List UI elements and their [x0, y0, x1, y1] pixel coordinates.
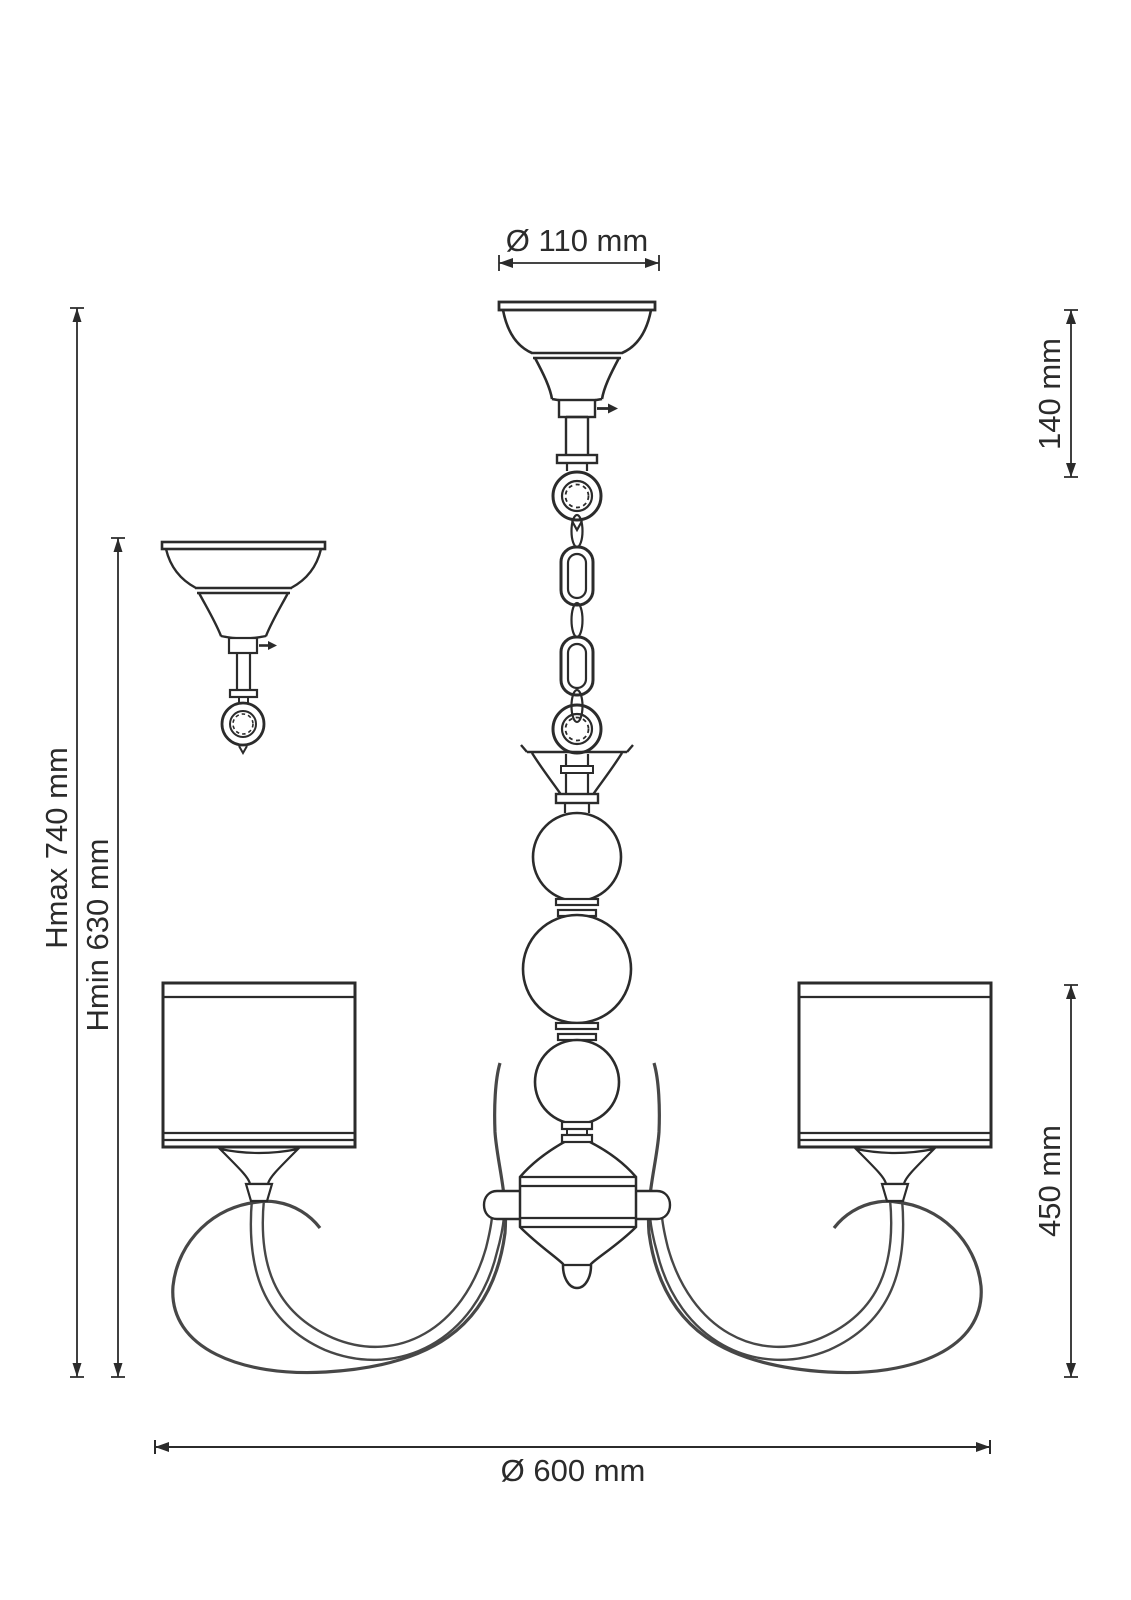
canopy-collar — [559, 400, 595, 417]
chain-link-oval — [561, 637, 593, 695]
detail-stem — [237, 653, 250, 690]
arrow-up-icon — [1066, 985, 1076, 999]
ball-spool-connector — [556, 899, 598, 916]
detail-flange — [230, 690, 257, 697]
glass-ball-small-bottom — [535, 1040, 619, 1124]
arrow-up-icon — [1066, 310, 1076, 324]
ball-spool-connector — [556, 1023, 598, 1040]
lampshade-left — [163, 983, 355, 1147]
dim-overall-diameter-label: Ø 600 mm — [501, 1453, 646, 1488]
cup-socket — [246, 1184, 272, 1201]
arrow-down-icon — [1066, 463, 1076, 477]
arrow-up-icon — [114, 538, 123, 552]
trumpet-spool — [565, 803, 589, 813]
dim-max-height: Hmax 740 mm — [39, 308, 84, 1377]
bobeche-trumpet — [521, 745, 633, 813]
arrow-down-icon — [114, 1363, 123, 1377]
left-arm-tube-outer — [251, 1199, 504, 1360]
hanging-ring-bottom — [553, 705, 601, 753]
chain-link-oval — [561, 547, 593, 605]
cup-funnel — [856, 1149, 934, 1184]
candle-cup-left — [220, 1149, 298, 1201]
lampshade-right — [799, 983, 991, 1147]
central-hub — [520, 1141, 636, 1288]
ring-nub — [572, 521, 582, 530]
chain — [561, 515, 593, 722]
ceiling-canopy — [499, 302, 655, 471]
arm-boss-right — [633, 1191, 670, 1219]
cup-funnel — [220, 1149, 298, 1184]
canopy-detail-view — [162, 542, 325, 753]
cup-socket — [882, 1184, 908, 1201]
trumpet-base-flange — [556, 794, 598, 803]
chain-link-oval-inner — [568, 644, 586, 688]
arrow-right-icon — [976, 1442, 990, 1452]
suspension-stem — [566, 417, 588, 455]
technical-drawing-page: Ø 110 mm 140 mm Hmax 740 mm Hmin 630 mm … — [0, 0, 1131, 1600]
setscrew-arrow-icon — [259, 641, 277, 650]
dim-canopy-diameter-label: Ø 110 mm — [506, 223, 648, 258]
dim-max-height-label: Hmax 740 mm — [39, 747, 74, 949]
arrow-up-icon — [73, 308, 82, 322]
canopy-bell — [503, 310, 651, 402]
arrow-left-icon — [499, 258, 513, 268]
arm-boss-left — [484, 1191, 521, 1219]
glass-ball-small-top — [533, 813, 621, 901]
canopy-ceiling-plate — [499, 302, 655, 310]
arrow-down-icon — [1066, 1363, 1076, 1377]
dim-line — [155, 1440, 990, 1454]
detail-collar — [229, 638, 257, 653]
dim-body-height: 450 mm — [1032, 985, 1078, 1377]
trumpet-mid-flange — [561, 766, 593, 773]
hub-neck-spool — [562, 1122, 592, 1142]
dim-canopy-height: 140 mm — [1032, 310, 1078, 477]
right-arm-tube-outer — [650, 1199, 903, 1360]
shade-body — [799, 983, 991, 1147]
glass-ball-large — [523, 915, 631, 1023]
hanging-ring-top — [553, 472, 601, 530]
setscrew-arrow-icon — [597, 404, 618, 414]
dim-min-height: Hmin 630 mm — [80, 538, 125, 1377]
dim-canopy-diameter: Ø 110 mm — [499, 223, 659, 271]
detail-ceiling-plate — [162, 542, 325, 549]
arrow-down-icon — [73, 1363, 82, 1377]
stem-flange — [557, 455, 597, 463]
dim-min-height-label: Hmin 630 mm — [80, 839, 115, 1032]
detail-hanging-ring — [222, 703, 264, 753]
candle-cup-right — [856, 1149, 934, 1201]
arrow-left-icon — [155, 1442, 169, 1452]
chandelier-dimension-diagram: Ø 110 mm 140 mm Hmax 740 mm Hmin 630 mm … — [0, 0, 1131, 1600]
stem-neck — [567, 463, 587, 471]
dim-body-height-label: 450 mm — [1032, 1125, 1067, 1237]
ring-nub — [239, 746, 247, 753]
chain-link-thin — [572, 603, 583, 637]
detail-bell — [166, 549, 321, 639]
dim-canopy-height-label: 140 mm — [1032, 338, 1067, 450]
arrow-right-icon — [645, 258, 659, 268]
dim-overall-diameter: Ø 600 mm — [155, 1440, 990, 1488]
chain-link-oval-inner — [568, 554, 586, 598]
shade-body — [163, 983, 355, 1147]
